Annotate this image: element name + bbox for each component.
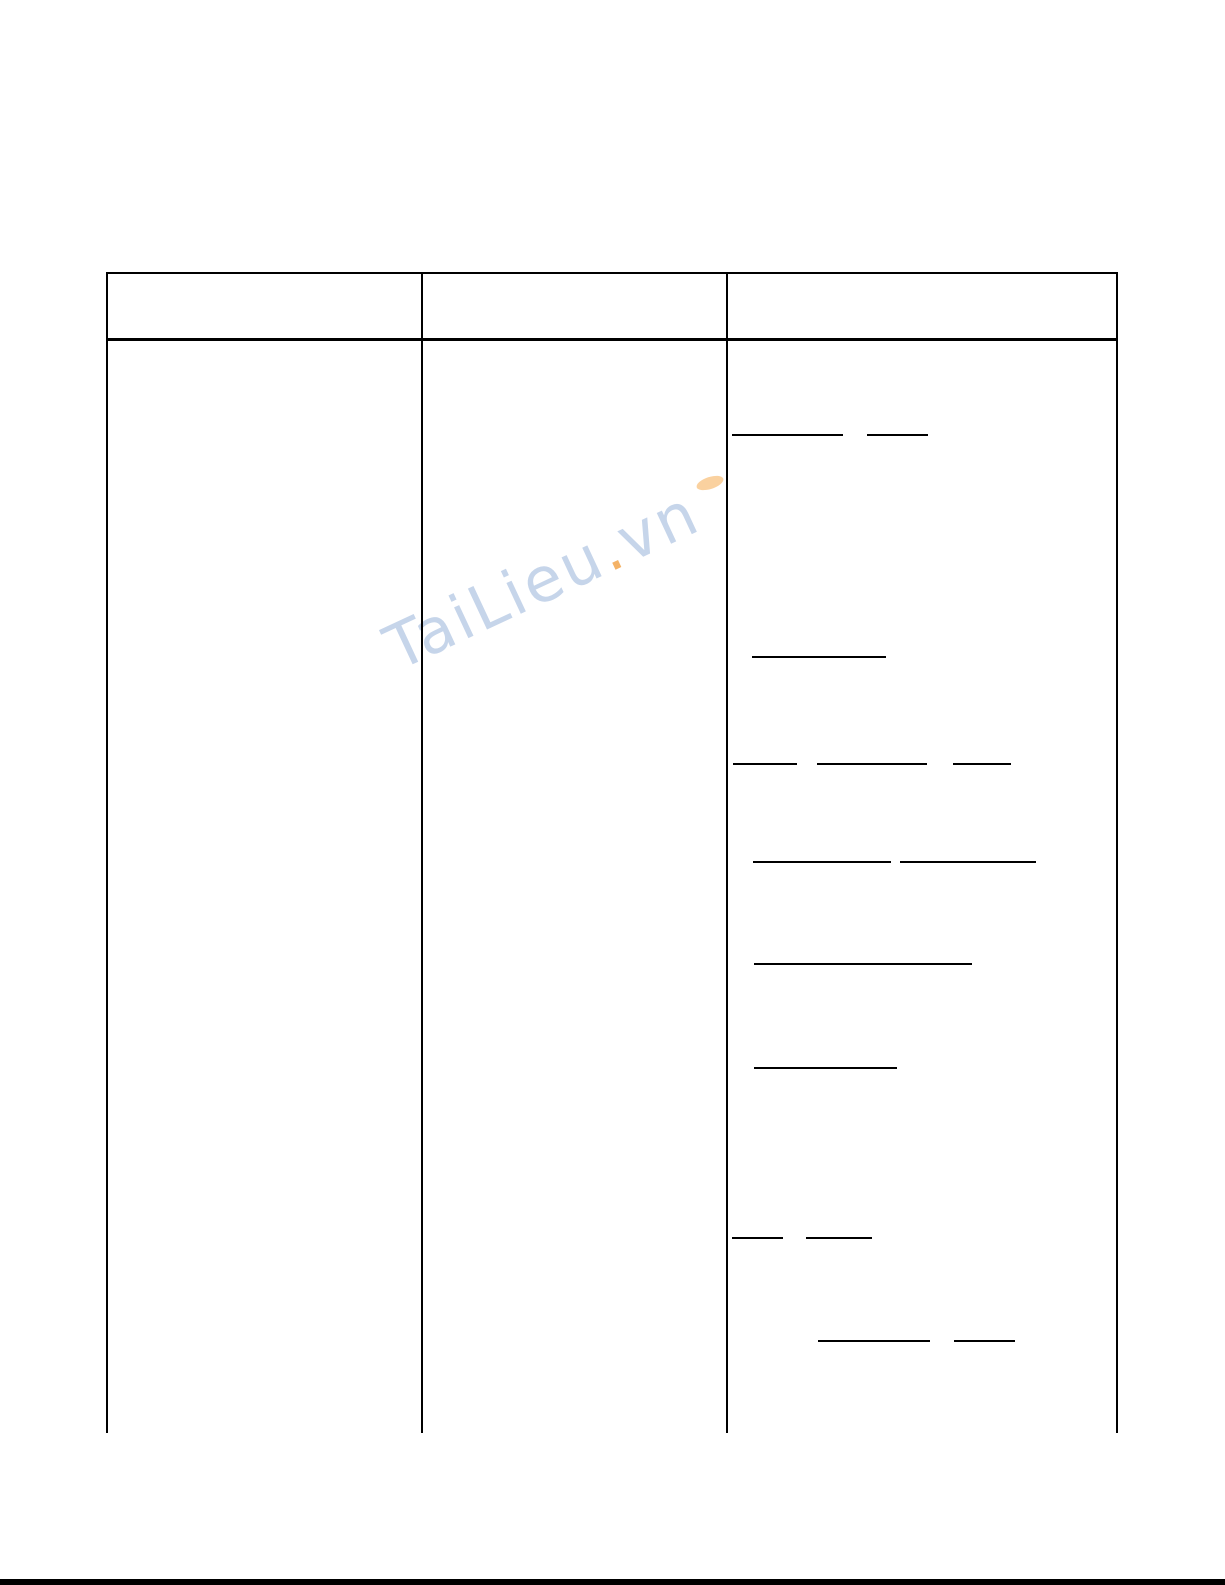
blank-line (818, 1340, 930, 1342)
table-header-row (108, 274, 1116, 341)
blank-line (732, 434, 843, 436)
blank-line (753, 861, 891, 863)
table-header-cell-2 (421, 274, 726, 338)
blank-line (752, 656, 886, 658)
blank-line (900, 861, 1036, 863)
column-divider-1 (421, 274, 423, 1433)
table-header-cell-1 (108, 274, 421, 338)
blank-line (754, 963, 972, 965)
blank-line (806, 1237, 872, 1239)
blank-line (732, 1237, 783, 1239)
blank-line (867, 434, 928, 436)
page-bottom-strip (0, 1579, 1225, 1585)
blank-line (954, 1340, 1015, 1342)
document-page: TaiLieu.vn (0, 0, 1225, 1585)
blank-line (953, 763, 1011, 765)
blank-line (817, 763, 927, 765)
table-header-cell-3 (726, 274, 1116, 338)
blank-line (754, 1067, 897, 1069)
lesson-table (106, 272, 1118, 1433)
blank-line (733, 763, 797, 765)
column-divider-2 (726, 274, 728, 1433)
